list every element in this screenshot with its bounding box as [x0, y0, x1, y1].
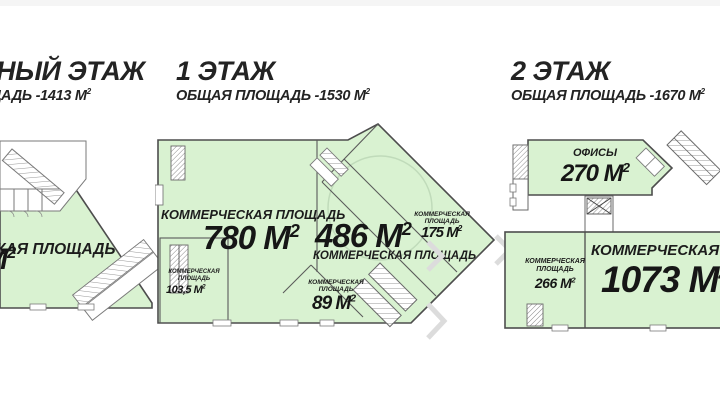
door-tick [213, 320, 231, 326]
floor-subtitle-basement-text: ЩАДЬ -1413 М [0, 88, 87, 104]
door-tick [280, 320, 298, 326]
room-label: ОФИСЫ [540, 147, 650, 160]
top-strip [0, 0, 720, 6]
floor-subtitle-2-sup: 2 [701, 87, 705, 96]
floor2-connector [585, 196, 613, 232]
floorplan-2: ОФИСЫ 270 М2 КОММЕРЧЕСКАЯ ПЛОЩАДЬ 266 М2… [500, 118, 720, 333]
floor-title-2: 2 ЭТАЖ [511, 56, 610, 87]
room-area: 270 М2 [540, 160, 650, 188]
door-tick [30, 304, 46, 310]
room-area-num: 780 М [203, 219, 290, 256]
floorplan-basement: КАЯ ПЛОЩАДЬ М2 [0, 135, 162, 335]
room-area-num: 103,5 М [166, 284, 202, 296]
room-label: КОММЕРЧЕСКАЯ ПЛОЩАДЬ [305, 279, 367, 294]
room-area-num: 486 М [315, 217, 402, 254]
floorplan-basement-drawing [0, 135, 162, 335]
stairs-icon [527, 304, 543, 326]
door-tick [552, 325, 568, 331]
door-tick [78, 304, 94, 310]
floor-subtitle-1-text: ОБЩАЯ ПЛОЩАДЬ -1530 М [176, 88, 366, 104]
room-area: 266 М2 [522, 275, 588, 291]
room-area-num: М [0, 243, 7, 276]
room-area-num: 89 М [312, 293, 350, 314]
room-area-sup: 2 [571, 275, 575, 284]
room-label: КАЯ ПЛОЩАДЬ [0, 241, 115, 259]
floor-subtitle-2: ОБЩАЯ ПЛОЩАДЬ -1670 М2 [511, 87, 705, 104]
room-area-sup: 2 [7, 244, 15, 262]
room-label: КОММЕРЧЕСКАЯ ПЛОЩАДЬ [522, 258, 588, 274]
floor-subtitle-2-text: ОБЩАЯ ПЛОЩАДЬ -1670 М [511, 88, 701, 104]
floor2-stairs-topright [667, 131, 720, 185]
room-area-num: 1073 М [601, 259, 718, 300]
room-area: 89 М2 [312, 293, 355, 315]
floor-title-1: 1 ЭТАЖ [176, 56, 275, 87]
door-tick [320, 320, 334, 326]
floor-subtitle-basement: ЩАДЬ -1413 М2 [0, 87, 91, 104]
room-area: 1073 М2 [601, 259, 720, 301]
room-area-num: 270 М [561, 160, 623, 187]
floor-subtitle-1: ОБЩАЯ ПЛОЩАДЬ -1530 М2 [176, 87, 370, 104]
room-label: КОММЕРЧЕСКАЯ ПЛОЩАДЬ [165, 269, 223, 283]
floor-plans-page: НЫЙ ЭТАЖ ЩАДЬ -1413 М2 1 ЭТАЖ ОБЩАЯ ПЛОЩ… [0, 0, 720, 420]
wall-notch [155, 185, 163, 205]
floor-subtitle-basement-sup: 2 [87, 87, 91, 96]
floor-subtitle-1-sup: 2 [366, 87, 370, 96]
room-area-num: 266 М [535, 275, 571, 291]
room-area: М2 [0, 243, 15, 277]
room-label: КОММЕРЧЕСКАЯ ПЛОЩАДЬ [591, 242, 720, 259]
room-area-sup: 2 [623, 160, 629, 175]
floor-title-basement: НЫЙ ЭТАЖ [0, 56, 145, 87]
room-area-sup: 2 [290, 221, 299, 241]
door-tick [650, 325, 666, 331]
room-area-sup: 2 [350, 294, 355, 305]
room-area: 780 М2 [203, 219, 299, 257]
room-area-sup: 2 [202, 284, 205, 290]
room-area: 103,5 М2 [166, 284, 205, 296]
stairs-icon [171, 146, 185, 180]
floor2-stair-column [510, 145, 528, 210]
